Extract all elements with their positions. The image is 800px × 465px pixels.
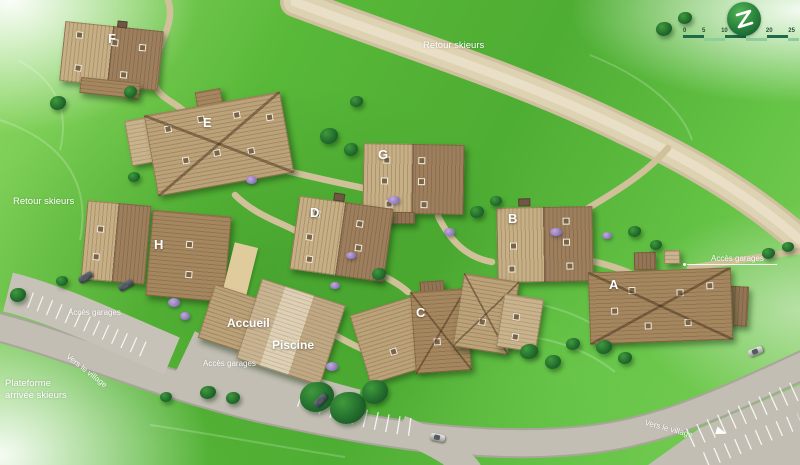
scale-tick: 25 bbox=[788, 28, 795, 35]
leader-line bbox=[687, 264, 777, 265]
roof-window-icon bbox=[306, 233, 314, 241]
resort-logo bbox=[727, 2, 761, 36]
acces-garages-right-label: Accès garages bbox=[711, 254, 764, 263]
leaf-z-logo-icon bbox=[727, 2, 761, 36]
bush-icon bbox=[602, 232, 612, 239]
scale-tick: 5 bbox=[702, 28, 705, 35]
roof-window-icon bbox=[354, 244, 362, 252]
roof-window-icon bbox=[511, 333, 519, 341]
retour-skieurs-left-label: Retour skieurs bbox=[13, 196, 74, 207]
roof-window-icon bbox=[92, 253, 100, 261]
bush-icon bbox=[550, 228, 562, 236]
building-label-f: F bbox=[108, 32, 116, 45]
roof-window-icon bbox=[418, 178, 425, 185]
acces-garages-center-label: Accès garages bbox=[203, 359, 256, 368]
plateforme-line1: Plateforme bbox=[5, 378, 67, 390]
building-label-c: C bbox=[416, 306, 425, 319]
scale-segment bbox=[683, 35, 704, 38]
bush-icon bbox=[346, 252, 356, 259]
roof-window-icon bbox=[563, 239, 570, 246]
building-label-g: G bbox=[378, 148, 388, 161]
scale-segment bbox=[704, 38, 725, 41]
building-a-annex bbox=[634, 252, 657, 271]
roof-window-icon bbox=[563, 218, 570, 225]
building-label-d: D bbox=[310, 206, 319, 219]
plateforme-line2: arrivée skieurs bbox=[5, 390, 67, 402]
roof-window-icon bbox=[684, 319, 691, 326]
bush-icon bbox=[330, 282, 340, 289]
chimney bbox=[117, 20, 128, 28]
roof-window-icon bbox=[611, 307, 618, 314]
retour-skieurs-top-label: Retour skieurs bbox=[423, 40, 484, 51]
building-label-e: E bbox=[203, 116, 212, 129]
bush-icon bbox=[180, 312, 190, 320]
roof-window-icon bbox=[628, 287, 635, 294]
roof-window-icon bbox=[566, 263, 573, 270]
scale-segment bbox=[746, 38, 767, 41]
roof-window-icon bbox=[706, 282, 713, 289]
scale-tick: 0 bbox=[683, 28, 686, 35]
bush-icon bbox=[388, 196, 400, 204]
roof-window-icon bbox=[510, 242, 517, 249]
roof-window-icon bbox=[74, 64, 82, 72]
roof-window-icon bbox=[305, 255, 313, 263]
roof-window-icon bbox=[389, 347, 398, 356]
roof-window-icon bbox=[182, 156, 190, 164]
roof-window-icon bbox=[508, 266, 515, 273]
bush-icon bbox=[246, 176, 257, 184]
roof-window-icon bbox=[356, 220, 364, 228]
building-label-h: H bbox=[154, 238, 163, 251]
roof-window-icon bbox=[97, 225, 105, 233]
building-label-b: B bbox=[508, 212, 517, 225]
building-label-a: A bbox=[609, 278, 618, 291]
leader-dot-icon bbox=[683, 263, 686, 266]
roof-window-icon bbox=[418, 157, 425, 164]
roof-window-icon bbox=[139, 44, 147, 52]
bush-icon bbox=[326, 362, 338, 371]
roof-window-icon bbox=[213, 149, 221, 157]
chimney bbox=[333, 193, 345, 202]
resort-site-map: F E G D B bbox=[0, 0, 800, 465]
roof-window-icon bbox=[645, 322, 652, 329]
roof-window-icon bbox=[164, 125, 172, 133]
chimney bbox=[518, 198, 530, 206]
piscine-label: Piscine bbox=[272, 338, 314, 352]
roof-window-icon bbox=[76, 31, 84, 39]
roof-window-icon bbox=[381, 177, 388, 184]
bush-icon bbox=[168, 298, 180, 307]
roof-window-icon bbox=[478, 318, 486, 326]
roof-window-icon bbox=[434, 338, 441, 345]
roof-window-icon bbox=[512, 313, 520, 321]
scale-segment bbox=[767, 35, 788, 38]
roof-window-icon bbox=[233, 111, 241, 119]
acces-garages-left-label: Accès garages bbox=[68, 308, 121, 317]
roof-window-icon bbox=[185, 271, 193, 279]
scale-tick: 20 bbox=[766, 28, 773, 35]
roof-window-icon bbox=[186, 241, 194, 249]
roof-window-icon bbox=[247, 147, 255, 155]
roof-window-icon bbox=[266, 113, 274, 121]
scale-bar-segments bbox=[683, 35, 799, 42]
building-a-annex bbox=[664, 250, 680, 265]
roof-window-icon bbox=[420, 201, 427, 208]
roof-window-icon bbox=[676, 289, 683, 296]
building-c-wing-east bbox=[496, 293, 544, 353]
plateforme-label: Plateforme arrivée skieurs bbox=[5, 378, 67, 401]
roof-window-icon bbox=[120, 71, 128, 79]
scale-segment bbox=[788, 38, 799, 41]
accueil-label: Accueil bbox=[227, 316, 270, 330]
bush-icon bbox=[444, 228, 455, 236]
